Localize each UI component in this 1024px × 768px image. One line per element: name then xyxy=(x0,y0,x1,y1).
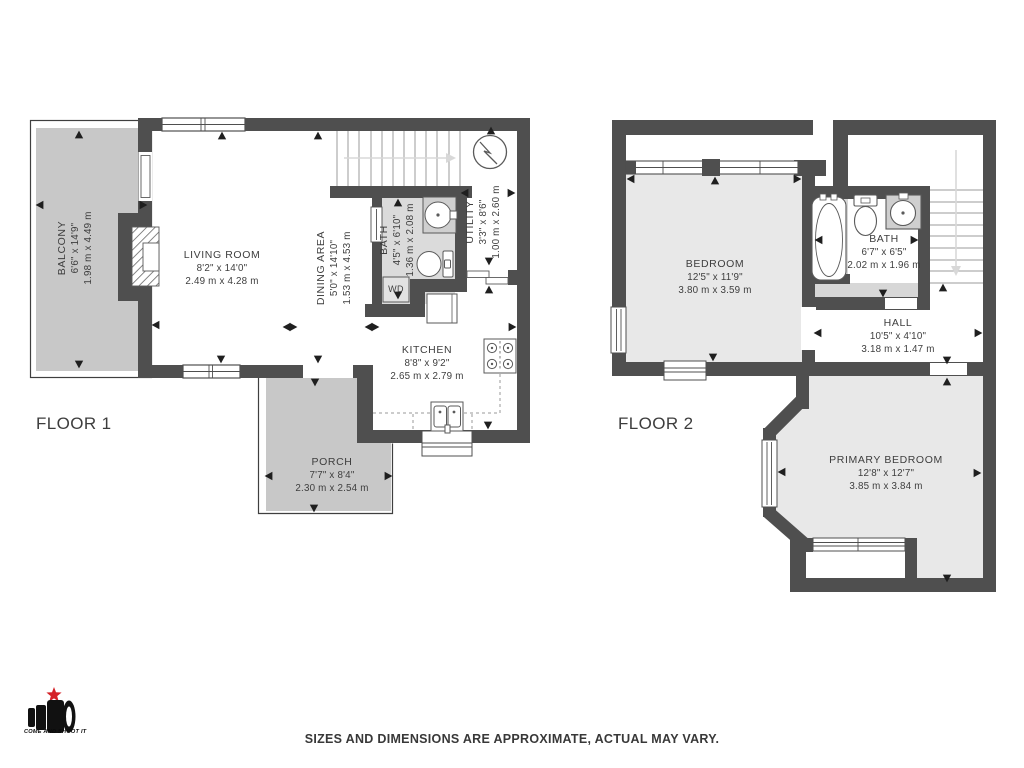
toilet-icon xyxy=(417,251,453,277)
logo-star-icon xyxy=(46,687,61,702)
come-and-shoot-it-logo xyxy=(28,687,76,733)
washer-dryer-label: WD xyxy=(388,284,404,294)
floorplan-canvas xyxy=(0,0,1024,768)
bath2-door-gap xyxy=(885,298,917,309)
balcony-door xyxy=(139,152,153,201)
kitchen-sink-icon xyxy=(431,402,463,433)
bedroom-label: BEDROOM 12'5" x 11'9" 3.80 m x 3.59 m xyxy=(678,258,751,296)
bedroom-door-gap xyxy=(801,307,816,350)
primary-bedroom-label: PRIMARY BEDROOM 12'8" x 12'7" 3.85 m x 3… xyxy=(829,454,943,492)
porch-doorway xyxy=(303,365,353,378)
refrigerator-icon xyxy=(427,294,457,323)
hall-label: HALL 10'5" x 4'10" 3.18 m x 1.47 m xyxy=(861,317,934,355)
bath2-sink-icon xyxy=(886,193,921,229)
kitchen-window xyxy=(422,431,472,456)
bedroom-top-window-band xyxy=(626,159,798,176)
living-bottom-window xyxy=(183,365,240,378)
floor1-title: FLOOR 1 xyxy=(36,414,112,434)
porch-label: PORCH 7'7" x 8'4" 2.30 m x 2.54 m xyxy=(295,456,368,494)
exterior-notch xyxy=(806,552,905,578)
water-heater-icon xyxy=(474,136,507,169)
bath1-label: BATH 4'5" x 6'10" 1.36 m x 2.08 m xyxy=(378,203,416,276)
bedroom-left-window xyxy=(611,307,626,353)
bay-window xyxy=(762,440,777,507)
stove-icon xyxy=(484,339,516,373)
fireplace xyxy=(132,227,159,286)
floor2-title: FLOOR 2 xyxy=(618,414,694,434)
living-room-label: LIVING ROOM 8'2" x 14'0" 2.49 m x 4.28 m xyxy=(184,249,261,287)
kitchen-label: KITCHEN 8'8" x 9'2" 2.65 m x 2.79 m xyxy=(390,344,463,382)
utility-label: UTILITY 3'3" x 8'6" 1.00 m x 2.60 m xyxy=(464,185,502,258)
floorplan-page: BALCONY 6'6" x 14'9" 1.98 m x 4.49 m LIV… xyxy=(0,0,1024,768)
dining-area-label: DINING AREA 5'0" x 14'10" 1.53 m x 4.53 … xyxy=(315,231,353,305)
floor1-plan xyxy=(31,118,531,514)
utility-door xyxy=(467,270,508,285)
living-top-window xyxy=(162,118,245,131)
bathroom-sink-icon xyxy=(423,197,457,233)
disclaimer-text: SIZES AND DIMENSIONS ARE APPROXIMATE, AC… xyxy=(0,732,1024,746)
primary-bottom-window-band xyxy=(813,538,905,551)
bathtub-icon xyxy=(812,194,846,280)
floor2-plan xyxy=(611,120,996,592)
bedroom-bottom-window xyxy=(664,361,706,380)
toilet2-icon xyxy=(854,195,877,236)
primary-door-gap xyxy=(930,363,967,375)
balcony-label: BALCONY 6'6" x 14'9" 1.98 m x 4.49 m xyxy=(56,211,94,284)
bath2-label: BATH 6'7" x 6'5" 2.02 m x 1.96 m xyxy=(847,233,920,271)
